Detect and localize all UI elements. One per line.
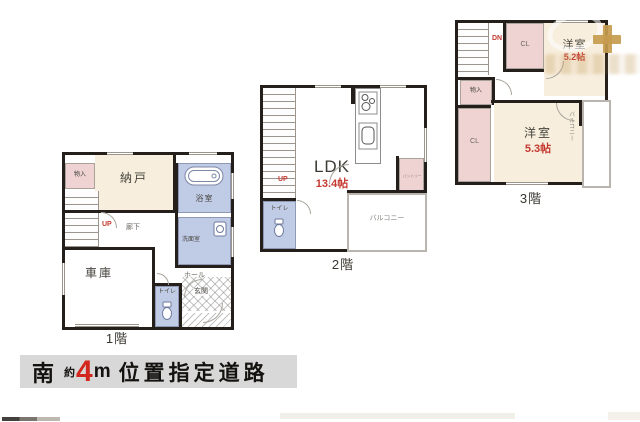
window [107, 152, 133, 155]
cropped-image-remnant [280, 413, 515, 419]
wall-segment [179, 286, 182, 327]
door-arc [496, 79, 512, 95]
room-yokushitsu-label: 浴室 [178, 195, 231, 204]
room-monoire-label: 物入 [65, 172, 95, 179]
stairs-dn-label: DN [492, 35, 502, 43]
room-senmenshitsu-label: 洗面室 [182, 237, 200, 244]
toilet-icon-f2 [273, 218, 285, 243]
room-toire-f1-label: トイレ [155, 289, 179, 296]
closet-top-label: CL [506, 41, 544, 49]
floor1-label: 1階 [62, 328, 172, 347]
balcony-f3 [582, 100, 611, 188]
wall-segment [65, 210, 176, 213]
wall-segment [152, 247, 155, 327]
banner-south: 南 [32, 356, 54, 388]
window [506, 182, 548, 185]
wall-segment [175, 163, 178, 268]
floor2-plan: UP トイレ LDK 13.4帖 パントリー バルコニー [260, 85, 427, 252]
floorplan-image: 納戸 物入 浴室 UP 廊下 洗面室 車庫 ホール トイレ 玄関 [0, 0, 640, 422]
banner-road-text: 位置指定道路 [119, 357, 269, 387]
bathtub-icon [184, 166, 224, 191]
stairs-f3 [458, 23, 489, 75]
floor3-label: 3階 [488, 188, 574, 207]
road-info-banner: 南 約 4 m 位置指定道路 [20, 355, 297, 388]
room-toire-f2-label: トイレ [263, 206, 296, 213]
banner-approx: 約 [64, 364, 75, 380]
wall-segment [65, 247, 155, 250]
balcony-f2-label: バルコニー [347, 215, 427, 223]
floor2-label: 2階 [300, 254, 386, 273]
washbasin-icon [213, 221, 227, 242]
banner-width-value: 4 [76, 357, 93, 387]
window [231, 173, 234, 199]
room-shako-label: 車庫 [85, 267, 113, 280]
watermark-text-blur [545, 54, 640, 74]
wall-segment [175, 265, 231, 268]
banner-width-unit: m [94, 361, 111, 383]
wall-segment [506, 69, 546, 72]
door-arc [297, 200, 311, 214]
room-monoire-f3-label: 物入 [460, 88, 492, 95]
corridor-label: 廊下 [126, 224, 140, 232]
window [189, 152, 217, 155]
toilet-icon-f1 [161, 301, 173, 326]
pantry-label: パントリー [403, 175, 422, 179]
window [62, 263, 65, 295]
window [380, 85, 406, 88]
watermark-plus-icon [593, 25, 621, 53]
floor1-plan: 納戸 物入 浴室 UP 廊下 洗面室 車庫 ホール トイレ 玄関 [62, 152, 234, 330]
closet-left-label: CL [458, 138, 491, 146]
door-arc [101, 212, 117, 228]
sink-icon [358, 122, 378, 155]
room-nando-label: 納戸 [95, 172, 173, 185]
window [315, 85, 341, 88]
kitchen-counter [355, 88, 381, 164]
stove-icon [358, 91, 378, 120]
door-arc [157, 273, 169, 285]
window [231, 227, 234, 257]
stairs-f1 [65, 191, 99, 247]
garage-door-opening [75, 324, 139, 327]
window [424, 128, 427, 162]
stairs-up-label-f2: UP [278, 176, 288, 184]
watermark [545, 10, 640, 80]
cropped-text-remnant [2, 417, 60, 421]
cropped-image-remnant [608, 412, 640, 420]
